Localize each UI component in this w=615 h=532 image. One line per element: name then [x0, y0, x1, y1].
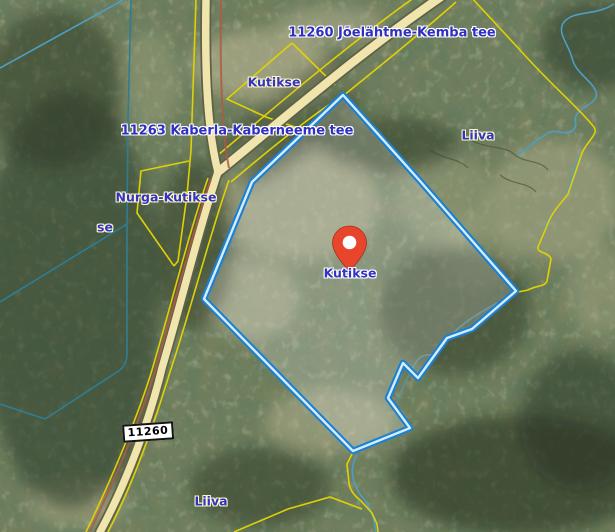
map-canvas[interactable]: 11260 Jõelähtme-Kemba tee Kutikse 11263 … — [0, 0, 615, 532]
marker-pin-hole — [343, 236, 357, 250]
map-imagery — [0, 0, 615, 532]
